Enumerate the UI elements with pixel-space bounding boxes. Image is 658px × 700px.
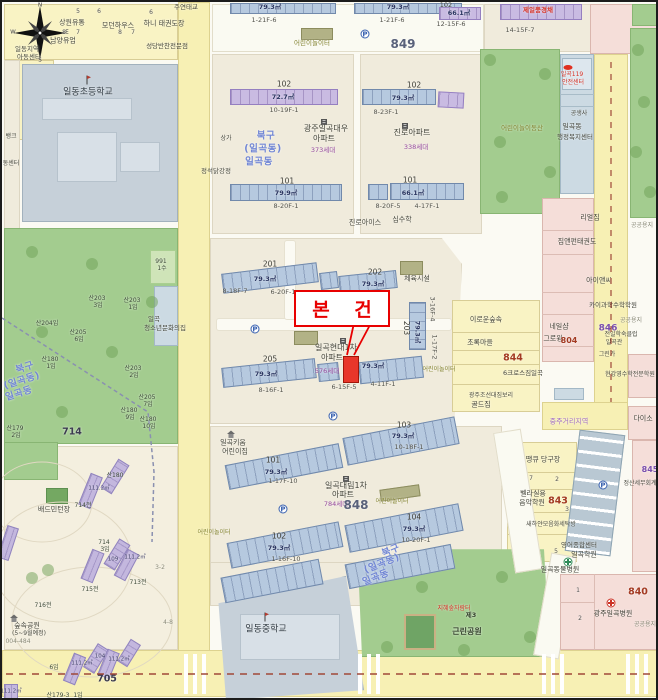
jinro-102b xyxy=(438,91,465,108)
parcel-east-column xyxy=(632,440,658,572)
civic-div2 xyxy=(560,106,594,107)
map-label: 79.9㎡ xyxy=(275,190,298,197)
map-label: 8-16F-1 xyxy=(259,387,284,394)
map-label: 1임 xyxy=(46,364,55,370)
map-label: 근린공원 xyxy=(452,628,481,636)
map-label: 현강영수학전문학원 xyxy=(605,372,655,378)
map-label: 79.3㎡ xyxy=(392,95,415,102)
map-label: 뱅크 xyxy=(5,134,16,140)
green-ne-corner xyxy=(632,4,658,26)
map-label: 1-21F-6 xyxy=(380,17,405,24)
map-label: 111.2㎡ xyxy=(108,657,129,663)
green-strip-east xyxy=(630,28,658,218)
hyundai-201b xyxy=(319,271,339,290)
map-label: 아파트 xyxy=(313,135,335,143)
map-label: 66.1㎡ xyxy=(448,10,471,17)
label-parcel-844: 844 xyxy=(503,353,523,363)
map-label: 일동지역 xyxy=(15,46,39,53)
map-label: 79.3㎡ xyxy=(254,276,277,283)
map-label: 4-17F-1 xyxy=(415,203,440,210)
parking-icon: P xyxy=(361,30,370,39)
school-bldg2 xyxy=(57,132,117,182)
sports-field xyxy=(404,614,436,650)
label-parcel-848: 848 xyxy=(343,499,368,511)
pdiv1 xyxy=(542,230,594,231)
map-label: 373세대 xyxy=(311,147,335,154)
map-label: 청소년문화의집 xyxy=(144,325,186,332)
map-label: 111.2㎡ xyxy=(124,555,145,561)
map-label: 동센터 xyxy=(3,161,20,167)
map-label: 숲속공원 xyxy=(14,623,40,630)
crosswalk xyxy=(542,654,564,694)
map-label: 2 xyxy=(578,616,582,622)
school-bldg1 xyxy=(42,98,132,120)
map-label: 79.3㎡ xyxy=(387,4,410,11)
map-label: 네일샵 xyxy=(549,324,568,331)
parking-icon: P xyxy=(599,481,608,490)
map-label: 정석닭강정 xyxy=(201,168,231,175)
map-label: 103 xyxy=(397,421,411,429)
map-label: 일곡동 xyxy=(562,124,581,131)
bus-shelter xyxy=(554,388,584,400)
map-label: 배드민턴장 xyxy=(38,507,70,514)
map-label: 산180 xyxy=(107,473,124,479)
map-label: 12-15F-6 xyxy=(436,21,465,28)
map-label: 8-23F-1 xyxy=(374,109,399,116)
map-label: 101 xyxy=(403,176,417,184)
map-label: 102 xyxy=(277,80,291,88)
map-label: 6-15F-5 xyxy=(332,384,357,391)
map-label: 1-16F-10 xyxy=(271,556,300,563)
jinro-101a xyxy=(368,184,388,200)
map-label: 111.2㎡ xyxy=(71,661,92,667)
strip-left xyxy=(4,60,20,232)
map-label: (일곡동) xyxy=(244,144,281,154)
map-label: 땡큐 당구장 xyxy=(526,457,560,464)
ydiv2 xyxy=(452,350,540,351)
label-parcel-843: 843 xyxy=(548,496,568,506)
map-label: W xyxy=(10,30,15,36)
apt-top-1 xyxy=(230,3,336,14)
road-east-west xyxy=(542,402,628,430)
map-label: 리얼짐 xyxy=(580,215,599,222)
map-label: 벨라실용 xyxy=(520,491,546,498)
map-label: 203 xyxy=(402,321,410,335)
map-label: 104 xyxy=(407,513,421,521)
parking-icon: P xyxy=(329,412,338,421)
map-label: 79.3㎡ xyxy=(403,526,426,533)
map-label: 일곡동 xyxy=(245,157,273,167)
map-label: 6 xyxy=(97,9,101,15)
pdiv2 xyxy=(542,254,594,255)
map-label: 산179-3 xyxy=(47,693,70,699)
map-label: 5 xyxy=(76,9,80,15)
map-label: 101 xyxy=(266,456,280,464)
map-label: 111.2㎡ xyxy=(0,689,21,695)
map-label: 10-20F-1 xyxy=(401,537,430,544)
map-label: 영어종합센터 xyxy=(561,542,597,549)
map-label: 1수 xyxy=(157,266,166,272)
label-parcel-705: 705 xyxy=(97,674,117,684)
map-label: 72.7㎡ xyxy=(272,94,295,101)
map-label: 1-17F-2 xyxy=(431,335,438,360)
map-label: 6-20F-1 xyxy=(271,289,296,296)
map-label: 어린이집 xyxy=(222,449,248,456)
map-label: 제일풍경채 xyxy=(523,7,553,14)
pdiv3 xyxy=(542,292,594,293)
map-label: 공생사 xyxy=(571,111,588,117)
map-label: 공공용지 xyxy=(634,622,656,628)
map-label: 초록마을 xyxy=(467,340,493,347)
subject-building xyxy=(343,356,359,383)
map-label: 일곡 xyxy=(148,316,160,323)
map-label: 3 xyxy=(565,507,569,513)
map-label: 일곡대림1차 xyxy=(325,482,367,490)
crosswalk xyxy=(626,654,650,694)
map-label: 그린가 xyxy=(599,352,616,358)
map-label: 10-19F-1 xyxy=(269,107,298,114)
map-label: 일곡동물병원 xyxy=(541,567,580,574)
label-parcel-840: 840 xyxy=(628,587,648,597)
map-label: 7임 xyxy=(143,402,152,408)
map-label: 다이소 xyxy=(633,416,652,423)
school-middle-bldg xyxy=(240,614,340,660)
label-road-name: 중주거리지역 xyxy=(550,419,589,426)
map-label: 광주일곡대우 xyxy=(304,125,348,133)
map-label: 일곡키움 xyxy=(220,440,246,447)
map-label: 정산세무회계 xyxy=(623,481,656,487)
pdiv5 xyxy=(542,346,594,347)
sports-facility-bldg xyxy=(400,261,423,275)
map-label: 004-484 xyxy=(5,639,30,645)
map-label: 1-17F-10 xyxy=(268,478,297,485)
map-label: 79.3㎡ xyxy=(265,469,288,476)
map-label: 진로아이스 xyxy=(349,220,381,227)
map-label: 이로운숲속 xyxy=(470,317,502,324)
map-label: 일곡관 xyxy=(606,340,623,346)
map-label: 아파트 xyxy=(321,354,343,362)
map-label: 714전 xyxy=(75,503,92,509)
map-label: 1임 xyxy=(128,305,137,311)
label-parcel-849: 849 xyxy=(390,38,415,50)
map-label: 광주조선대짐보리 xyxy=(469,393,513,399)
map-label: 산204임 xyxy=(36,321,59,327)
map-label: 짐앤펀태권도 xyxy=(558,239,597,246)
cadastral-map: PPPPP NWES주연태교상원유통모던하우스하니 태권도장남양유업성당반찬전문… xyxy=(0,0,658,700)
map-label: 3임 xyxy=(100,547,109,553)
map-label: 어린이놀이터 xyxy=(375,499,408,505)
map-label: 공공용지 xyxy=(620,318,642,324)
parcel-daiso xyxy=(628,406,658,440)
map-label: 7 xyxy=(76,30,80,36)
map-label: 10임 xyxy=(142,424,155,430)
map-label: 광주일곡병원 xyxy=(594,611,633,618)
map-label: 79.3㎡ xyxy=(392,433,415,440)
map-label: 어린이놀이터 xyxy=(422,367,455,373)
map-label: 79.3㎡ xyxy=(362,281,385,288)
crosswalk xyxy=(184,654,208,694)
map-label: 109 xyxy=(108,557,119,563)
map-label: 8-20F-1 xyxy=(274,203,299,210)
map-label: 심수학 xyxy=(392,217,411,224)
civic-div1 xyxy=(560,94,594,95)
map-label: 어린이놀이터 xyxy=(294,40,330,47)
map-label: 공공용지 xyxy=(631,223,653,229)
map-label: 79.3㎡ xyxy=(259,4,282,11)
map-label: 4-11F-1 xyxy=(371,381,396,388)
crosswalk xyxy=(358,654,382,694)
map-label: 행정복지센터 xyxy=(557,134,593,141)
map-label: 6크로스짐일곡 xyxy=(503,370,543,377)
map-label: 아동센터 xyxy=(17,54,41,61)
map-label: 6임 xyxy=(74,337,83,343)
map-label: 8-18F-7 xyxy=(223,288,248,295)
map-label: 4-8 xyxy=(163,620,173,626)
map-label: 북구 xyxy=(257,131,275,141)
map-label: 어린이놀이터 xyxy=(197,530,230,536)
map-label: 716전 xyxy=(35,603,52,609)
label-parcel-714: 714 xyxy=(62,427,82,437)
park-west-ext xyxy=(4,442,58,480)
map-label: 102 xyxy=(272,532,286,540)
map-label: 2임 xyxy=(129,373,138,379)
map-label: 102 xyxy=(407,81,421,89)
map-label: 14-15F-7 xyxy=(505,27,534,34)
map-label: 205 xyxy=(263,355,277,363)
map-label: 제3 xyxy=(466,612,477,619)
map-label: 338세대 xyxy=(404,144,428,151)
subject-property-annotation: 본 건 xyxy=(294,290,390,327)
map-label: 66.1㎡ xyxy=(402,190,425,197)
ydiv1 xyxy=(452,332,540,333)
map-label: (5~9월예정) xyxy=(12,631,46,637)
map-label: 2 xyxy=(555,477,559,483)
map-label: 9임 xyxy=(125,415,134,421)
map-label: 상원유통 xyxy=(59,20,85,27)
map-label: N xyxy=(38,3,42,9)
map-label: 79.3㎡ xyxy=(268,545,291,552)
map-label: 79.3㎡ xyxy=(362,363,385,370)
map-label: 6 xyxy=(149,10,153,16)
map-label: 576세대 xyxy=(315,368,339,375)
map-label: 1-21F-6 xyxy=(252,17,277,24)
map-label: 79.3㎡ xyxy=(414,321,421,344)
school-bldg3 xyxy=(120,142,160,172)
map-label: 일곡119 xyxy=(561,72,584,78)
map-label: 음악학원 xyxy=(519,500,545,507)
map-label: 하니 태권도장 xyxy=(144,21,185,28)
map-label: 안전센터 xyxy=(562,80,584,86)
map-label: 새하얀모음화세탁방 xyxy=(526,522,576,528)
ydiv4 xyxy=(452,384,540,385)
map-label: 일곡현대1차 xyxy=(315,344,357,352)
map-label: 845 xyxy=(642,466,658,474)
parking-icon: P xyxy=(251,325,260,334)
map-label: 8 xyxy=(62,30,66,36)
map-label: 진로아파트 xyxy=(394,129,431,137)
map-label: 7 xyxy=(529,476,533,482)
map-label: 101 xyxy=(280,177,294,185)
map-label: 아이앤씨 xyxy=(586,278,612,285)
hill-green-patch xyxy=(46,488,68,504)
map-label: 102 xyxy=(440,2,452,9)
map-label: 카이과학수학학원 xyxy=(589,302,637,309)
map-label: 2임 xyxy=(11,433,20,439)
map-label: 8 xyxy=(118,30,122,36)
parking-icon: P xyxy=(279,505,288,514)
map-label: 713전 xyxy=(130,580,147,586)
label-ildong-elementary: 일동초등학교 xyxy=(63,89,113,98)
map-label: 체육시설 xyxy=(404,276,430,283)
map-label: 남양유업 xyxy=(50,38,76,45)
map-label: 1 xyxy=(576,588,580,594)
label-ildong-middle: 일동중학교 xyxy=(245,626,286,635)
map-label: 주연태교 xyxy=(174,4,198,11)
map-label: 6임 xyxy=(49,665,58,671)
map-label: 어린이놀이동산 xyxy=(501,125,543,132)
map-label: 79.3㎡ xyxy=(255,371,278,378)
map-label: 10-18F-1 xyxy=(394,444,423,451)
map-label: 7 xyxy=(131,30,135,36)
map-label: 일곡학원 xyxy=(571,552,597,559)
map-label: 3임 xyxy=(93,303,102,309)
map-label: 5 xyxy=(554,549,558,555)
map-label: 111.2㎡ xyxy=(88,486,109,492)
pdiv4 xyxy=(542,314,594,315)
hdiv2 xyxy=(560,602,594,603)
map-label: 804 xyxy=(561,337,578,345)
map-label: 성당반찬전문점 xyxy=(146,43,188,50)
map-label: 1임 xyxy=(73,693,82,699)
map-label: 3-16F-4 xyxy=(429,297,436,322)
map-label: 104 xyxy=(95,654,106,660)
subject-property-label: 본 건 xyxy=(303,295,381,322)
map-label: 202 xyxy=(368,268,382,276)
map-label: 201 xyxy=(263,260,277,268)
map-label: 715전 xyxy=(82,587,99,593)
ydiv3 xyxy=(452,364,540,365)
map-label: 8-20F-5 xyxy=(376,203,401,210)
map-label: 전일학숙클럽 xyxy=(604,332,637,338)
map-label: 상가 xyxy=(220,136,231,142)
map-label: 3-2 xyxy=(155,565,165,571)
map-label: 골드짐 xyxy=(471,402,490,409)
